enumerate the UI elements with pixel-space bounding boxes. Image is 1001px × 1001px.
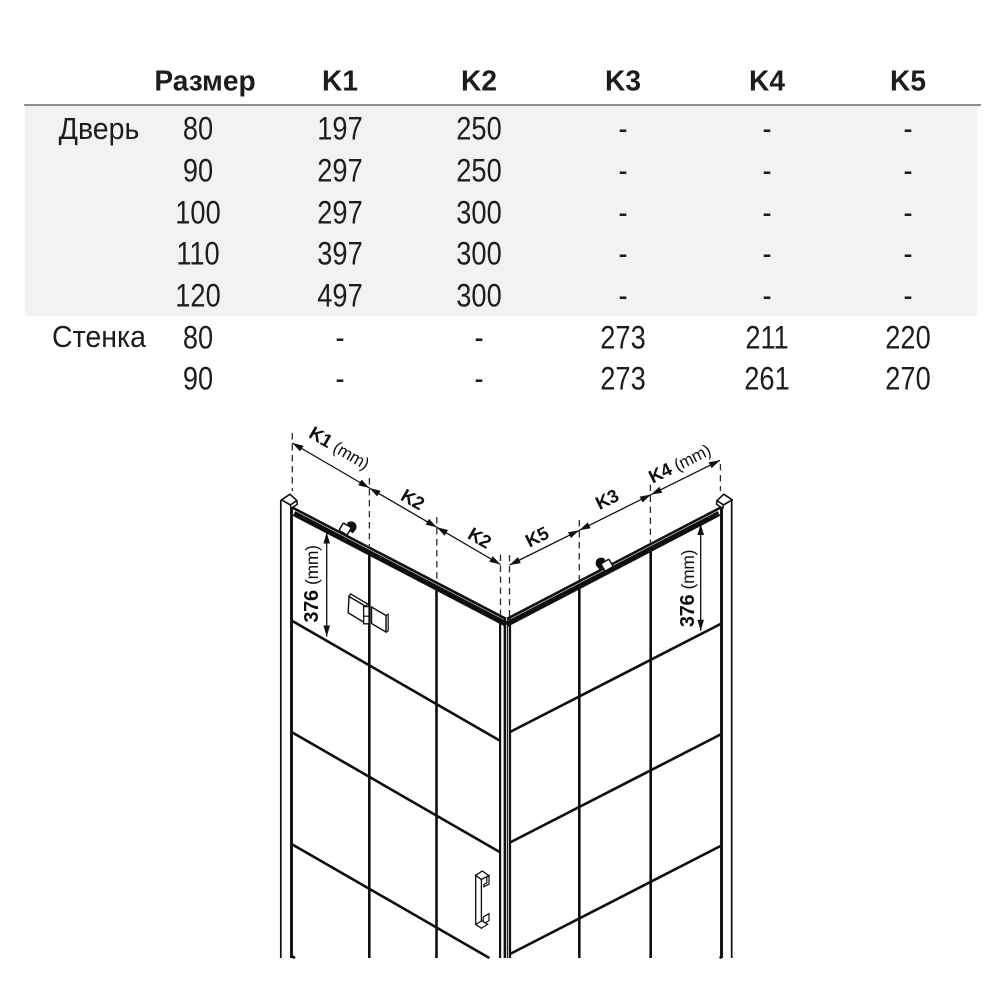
svg-text:K1 (mm): K1 (mm) xyxy=(306,422,374,474)
svg-text:K5: K5 xyxy=(522,522,552,551)
svg-text:K2: K2 xyxy=(464,523,495,553)
svg-text:K2: K2 xyxy=(398,484,429,514)
svg-text:376 (mm): 376 (mm) xyxy=(301,545,323,622)
svg-text:376 (mm): 376 (mm) xyxy=(677,550,699,627)
svg-text:K3: K3 xyxy=(592,485,622,514)
